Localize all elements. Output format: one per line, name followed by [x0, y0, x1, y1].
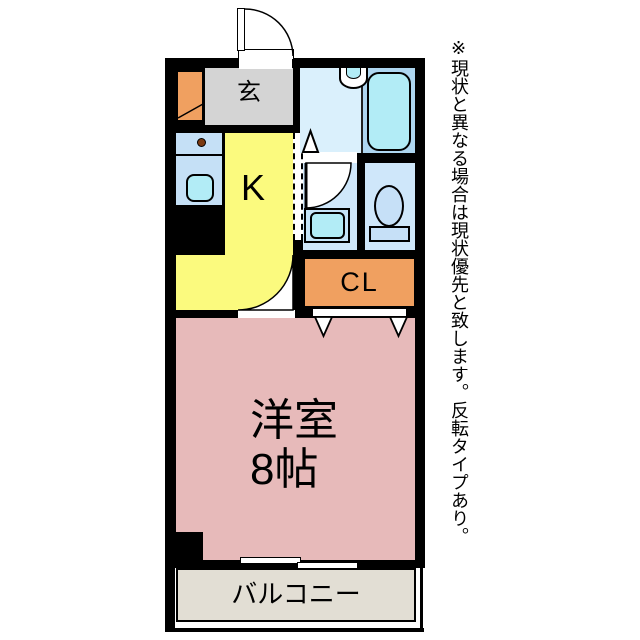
floor-plan: 玄 K CL 洋室 8帖 バルコニー [0, 0, 640, 640]
kitchen-sink [186, 174, 214, 202]
western-room-name: 洋室 [250, 396, 338, 445]
balcony-right-line [420, 568, 423, 630]
bath-divider [361, 86, 363, 153]
balcony-left-wall [165, 568, 175, 632]
sliding-window-left [240, 557, 301, 564]
western-room-size: 8帖 [250, 445, 338, 494]
balcony-label: バルコニー [176, 581, 416, 607]
stove-burner-icon [197, 138, 206, 147]
western-room-label: 洋室 8帖 [250, 396, 338, 494]
genkan-label: 玄 [205, 81, 293, 105]
kitchen-counter-divider [176, 154, 222, 156]
balcony-bottom-line [165, 628, 424, 632]
room-kitchen [225, 133, 293, 310]
kitchen-label: K [241, 170, 265, 206]
toilet-bowl [374, 185, 404, 227]
bathtub [367, 72, 411, 151]
closet-label: CL [303, 269, 416, 296]
bath-door-gap [303, 152, 357, 163]
closet-door-track [312, 308, 407, 317]
room-door-gap [238, 310, 295, 318]
washing-machine-pan-inner [310, 212, 345, 239]
disclaimer-note: ※現状と異なる場合は現状優先と致します。反転タイプあり。 [446, 38, 472, 598]
toilet-tank [369, 226, 410, 242]
entrance-door-gap [239, 59, 292, 69]
washbasin-bowl [346, 68, 361, 79]
entrance-door-leaf [237, 8, 245, 51]
room-kitchen-lower [176, 255, 225, 310]
room-corner-pillar [176, 532, 203, 560]
shoe-cabinet [176, 70, 204, 122]
